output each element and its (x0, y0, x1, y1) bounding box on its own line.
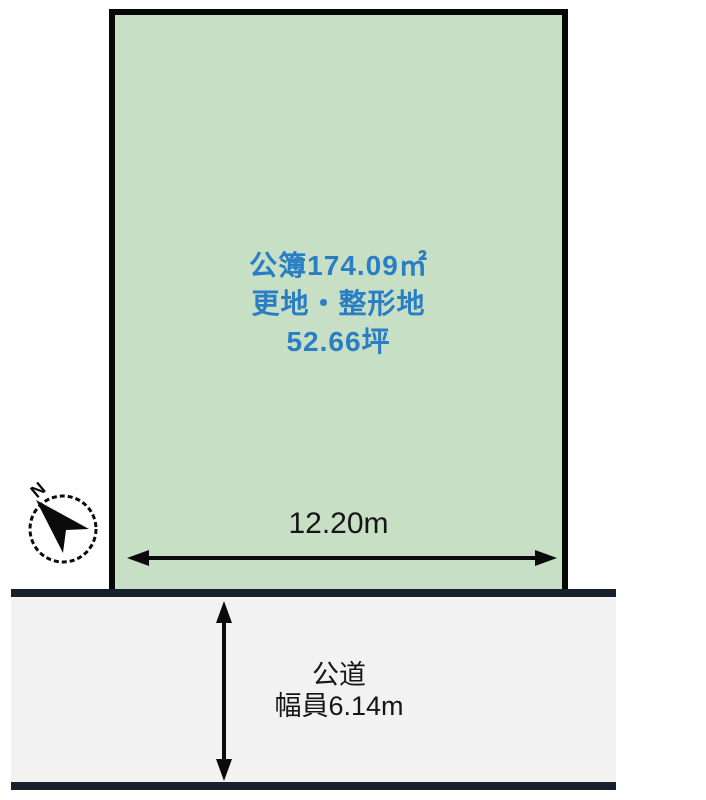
compass-north-label: N (27, 478, 50, 502)
compass-icon: N (17, 475, 109, 571)
road-width-label: 幅員6.14m (239, 691, 439, 722)
road-width-arrow-icon (213, 600, 235, 782)
parcel-label: 公簿174.09㎡ 更地・整形地 52.66坪 (109, 247, 568, 361)
parcel-registered-area: 公簿174.09㎡ (109, 247, 568, 285)
road-name-label: 公道 (239, 660, 439, 691)
frontage-dimension-label: 12.20m (109, 506, 568, 542)
road-label: 公道 幅員6.14m (239, 660, 439, 722)
parcel-area-tsubo: 52.66坪 (109, 323, 568, 361)
parcel-condition: 更地・整形地 (109, 285, 568, 323)
site-plan-canvas: 公簿174.09㎡ 更地・整形地 52.66坪 12.20m 公道 幅員6.14… (0, 0, 706, 800)
frontage-dimension-arrow-icon (126, 548, 558, 568)
north-arrow-icon (36, 500, 89, 553)
